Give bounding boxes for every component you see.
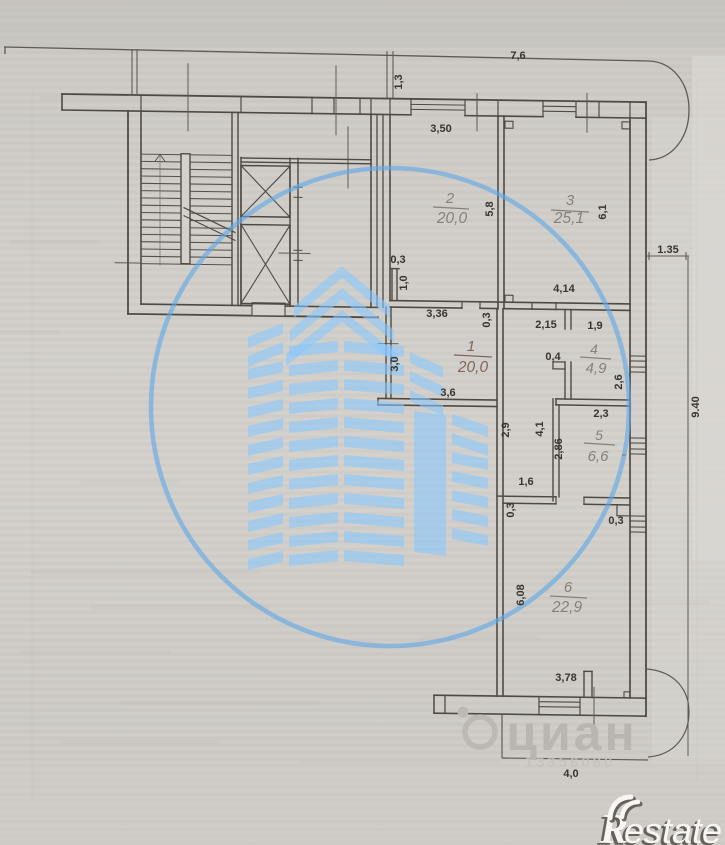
svg-text:estate: estate bbox=[624, 810, 722, 845]
svg-text:4,9: 4,9 bbox=[586, 360, 608, 377]
svg-text:1,6: 1,6 bbox=[518, 476, 533, 488]
svg-text:1,3: 1,3 bbox=[393, 74, 405, 89]
svg-text:1,9: 1,9 bbox=[587, 320, 602, 332]
svg-text:0,3: 0,3 bbox=[505, 502, 517, 517]
svg-text:0,4: 0,4 bbox=[545, 351, 561, 363]
svg-text:0,3: 0,3 bbox=[390, 254, 405, 266]
svg-text:7,6: 7,6 bbox=[510, 50, 525, 62]
svg-text:20,0: 20,0 bbox=[436, 210, 468, 227]
svg-text:2,9: 2,9 bbox=[500, 422, 512, 437]
svg-text:3,36: 3,36 bbox=[426, 308, 447, 320]
svg-text:3,0: 3,0 bbox=[389, 356, 401, 371]
svg-text:5: 5 bbox=[595, 427, 603, 443]
svg-text:-: - bbox=[621, 446, 626, 463]
svg-text:6: 6 bbox=[564, 579, 573, 596]
svg-text:20,0: 20,0 bbox=[457, 359, 489, 376]
svg-text:6,6: 6,6 bbox=[588, 448, 610, 465]
svg-text:2,86: 2,86 bbox=[553, 438, 565, 459]
svg-text:6,08: 6,08 bbox=[515, 584, 527, 605]
svg-text:1,0: 1,0 bbox=[398, 275, 410, 290]
svg-text:2,6: 2,6 bbox=[613, 374, 625, 389]
svg-text:6,1: 6,1 bbox=[597, 204, 609, 219]
svg-text:3,50: 3,50 bbox=[430, 123, 451, 135]
svg-text:0,3: 0,3 bbox=[481, 312, 493, 327]
svg-text:3: 3 bbox=[566, 192, 575, 209]
svg-text:2,3: 2,3 bbox=[593, 408, 608, 420]
svg-text:13356080: 13356080 bbox=[525, 754, 616, 771]
svg-text:4,14: 4,14 bbox=[553, 283, 575, 295]
svg-text:22,9: 22,9 bbox=[551, 599, 583, 616]
svg-text:2: 2 bbox=[445, 190, 455, 207]
svg-text:1: 1 bbox=[467, 338, 475, 355]
svg-text:2,15: 2,15 bbox=[535, 319, 556, 331]
svg-text:1.35: 1.35 bbox=[657, 244, 678, 256]
svg-text:25,1: 25,1 bbox=[553, 210, 584, 227]
svg-text:9.40: 9.40 bbox=[690, 396, 702, 417]
svg-text:4: 4 bbox=[590, 341, 598, 357]
svg-text:3,6: 3,6 bbox=[440, 387, 455, 399]
svg-text:5,8: 5,8 bbox=[484, 201, 496, 216]
svg-text:3,78: 3,78 bbox=[555, 672, 576, 684]
svg-text:0,3: 0,3 bbox=[608, 515, 623, 527]
svg-text:циан: циан bbox=[506, 705, 637, 761]
svg-text:4,1: 4,1 bbox=[534, 421, 546, 436]
